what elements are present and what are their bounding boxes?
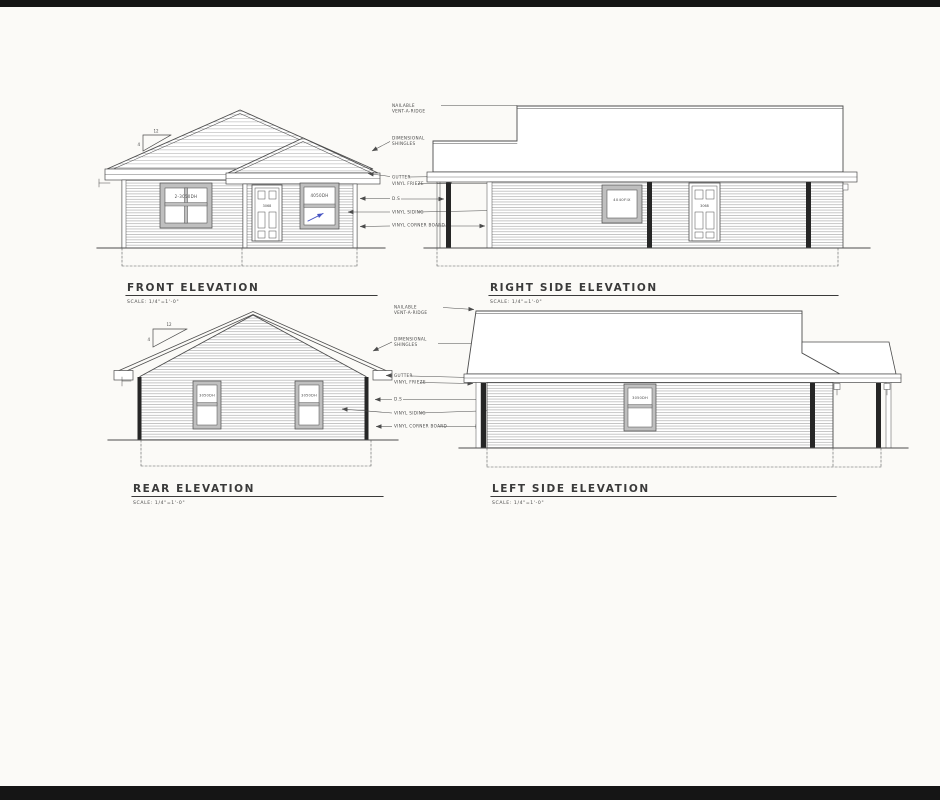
callout-shingles-line1: DIMENSIONAL — [394, 337, 427, 342]
front-window-4050dh: 4050DH — [300, 183, 339, 229]
callout-shingles-line1: DIMENSIONAL — [392, 136, 425, 141]
right-window-4040fix: 4040FIX — [602, 185, 642, 223]
window-sash-bar — [299, 403, 319, 407]
door-size-label: 3068 — [263, 204, 272, 208]
door-frame — [689, 183, 720, 241]
callout-vinyl-frieze: VINYL FRIEZE — [394, 380, 426, 385]
left-downspout-left — [481, 383, 486, 448]
left-main-roof-plane — [467, 311, 840, 374]
left-downspout-mid — [810, 383, 815, 448]
door-size-label: 3068 — [700, 204, 709, 208]
right-gutter-end-bracket — [843, 184, 848, 190]
scan-edge-bottom-bar — [0, 786, 940, 800]
callout-gutter: GUTTER — [394, 373, 413, 378]
right-corner-board — [487, 182, 492, 248]
pitch-run-label: 12 — [153, 129, 159, 134]
window-glass — [607, 190, 637, 218]
callout-shingles-line2: SHINGLES — [394, 342, 417, 347]
window-sash-bar — [628, 405, 652, 409]
right-side-door: 3068 — [689, 183, 720, 241]
window-sash-bar — [165, 203, 207, 207]
right-scale-note: SCALE: 1/4"=1'-0" — [490, 299, 542, 305]
door-frame — [252, 185, 282, 241]
door-lite-left — [258, 191, 265, 199]
left-porch-post — [876, 383, 881, 448]
rear-downspout-right — [365, 377, 369, 440]
left-post-cap-bracket — [834, 384, 840, 390]
rear-scale-note: SCALE: 1/4"=1'-0" — [133, 500, 185, 506]
callout-downspout: D.S — [392, 196, 400, 201]
left-scale-note: SCALE: 1/4"=1'-0" — [492, 500, 544, 506]
front-left-corner-board — [122, 180, 126, 248]
callout-nailable-vent-line1: NAILABLE — [392, 103, 415, 108]
front-window-2-3050dh: 2-3050DH — [160, 183, 212, 228]
left-corner-board — [476, 383, 481, 449]
front-scale-note: SCALE: 1/4"=1'-0" — [127, 299, 179, 305]
left-fascia-gutter-band — [464, 374, 901, 383]
rear-downspout-left — [138, 377, 142, 440]
window-size-label: 3050DH — [301, 394, 317, 398]
door-lite-right — [269, 191, 276, 199]
window-size-label: 3050DH — [199, 394, 215, 398]
front-door: 3068 — [252, 185, 282, 241]
rear-gutter-return-left — [114, 371, 133, 381]
callout-gutter: GUTTER — [392, 175, 411, 180]
door-lite-left — [695, 190, 703, 199]
callout-nailable-vent-line2: VENT-A-RIDGE — [392, 109, 425, 114]
left-wall-siding — [487, 383, 833, 449]
front-entry-left-corner-board — [243, 184, 247, 248]
rear-window-3050dh-left: 3050DH — [193, 381, 221, 429]
left-side-elevation-title: LEFT SIDE ELEVATION — [492, 483, 650, 495]
rear-window-3050dh-right: 3050DH — [295, 381, 323, 429]
front-entry-right-corner-board — [353, 184, 357, 248]
window-size-label: 4040FIX — [613, 197, 631, 202]
door-lite-right — [706, 190, 714, 199]
callout-shingles-line2: SHINGLES — [392, 141, 415, 146]
left-post-cap-bracket — [884, 384, 890, 390]
callout-nailable-vent-line1: NAILABLE — [394, 305, 417, 310]
right-downspout-right — [806, 182, 811, 248]
right-side-elevation-title: RIGHT SIDE ELEVATION — [490, 282, 658, 294]
window-size-label: 3050DH — [632, 396, 648, 400]
window-sash-bar — [304, 204, 335, 208]
callout-downspout: D.S — [394, 397, 402, 402]
pitch-run-label: 12 — [166, 322, 172, 327]
window-size-label: 2-3050DH — [175, 194, 198, 199]
callout-nailable-vent-line2: VENT-A-RIDGE — [394, 310, 427, 315]
right-downspout-mid — [647, 182, 652, 248]
right-porch-post — [446, 183, 451, 249]
rear-elevation-title: REAR ELEVATION — [133, 483, 255, 495]
left-window-3050dh: 3050DH — [624, 384, 656, 431]
scan-edge-top-bar — [0, 0, 940, 7]
elevation-drawing-sheet: 2-3050DH 3068 4050DH — [0, 0, 940, 800]
window-size-label: 4050DH — [310, 193, 328, 198]
front-elevation-title: FRONT ELEVATION — [127, 282, 259, 294]
window-sash-bar — [197, 403, 217, 407]
drawing-canvas: 2-3050DH 3068 4050DH — [0, 0, 940, 800]
callout-vinyl-corner-board: VINYL CORNER BOARD — [394, 424, 447, 429]
right-wall-siding — [490, 182, 843, 248]
